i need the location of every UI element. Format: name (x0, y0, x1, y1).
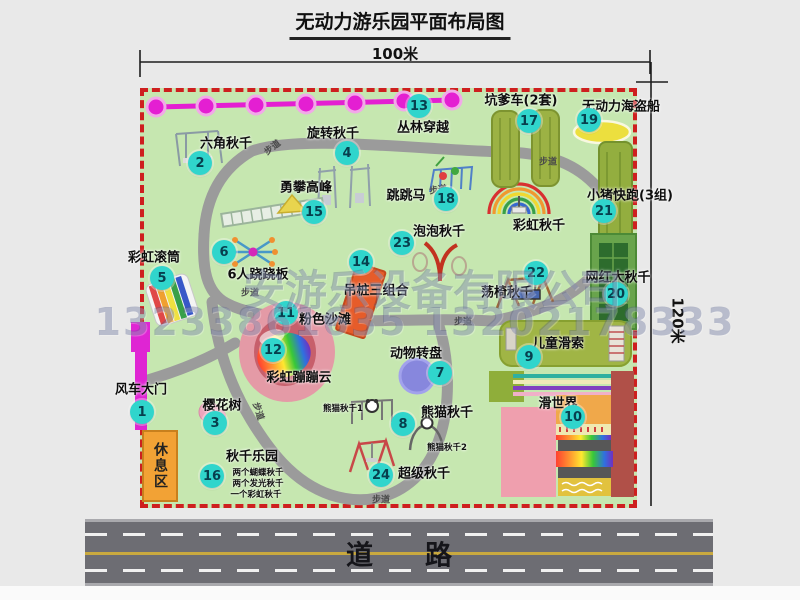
label-pink-beach: 粉色沙滩 (299, 309, 351, 328)
label-pit-cars: 坑爹车(2套) (485, 90, 558, 109)
height-dimension-label: 120米 (668, 297, 689, 343)
label-swing-park-sub3: 一个彩虹秋千 (230, 488, 281, 500)
width-dimension-label: 100米 (372, 43, 418, 64)
badge-14: 14 (349, 250, 373, 274)
label-bubble-swing: 泡泡秋千 (413, 221, 465, 240)
walkway-label: 步道 (241, 286, 259, 299)
badge-13: 13 (407, 94, 431, 118)
badge-10: 10 (561, 405, 585, 429)
label-animal-turntable: 动物转盘 (390, 343, 442, 362)
label-jumping-horse: 跳跳马 (386, 185, 425, 204)
badge-21: 21 (592, 199, 616, 223)
label-windmill-gate: 风车大门 (115, 379, 167, 398)
badge-15: 15 (302, 200, 326, 224)
badge-23: 23 (390, 231, 414, 255)
page-title: 无动力游乐园平面布局图 (289, 7, 510, 40)
label-hanging-piles: 吊桩三组合 (343, 280, 408, 299)
badge-8: 8 (391, 412, 415, 436)
badge-1: 1 (130, 400, 154, 424)
label-panda-swing: 熊猫秋千 (421, 402, 473, 421)
label-rotating-swing: 旋转秋千 (307, 123, 359, 142)
badge-3: 3 (203, 411, 227, 435)
road-label: 道路 (294, 533, 504, 572)
label-swing-park: 秋千乐园 (226, 446, 278, 465)
badge-20: 20 (604, 282, 628, 306)
badge-9: 9 (517, 345, 541, 369)
badge-16: 16 (200, 464, 224, 488)
label-super-swing: 超级秋千 (398, 463, 450, 482)
walkway-label: 步道 (372, 493, 390, 506)
label-six-person-seesaw: 6人跷跷板 (227, 264, 288, 283)
label-rainbow-roller: 彩虹滚筒 (128, 247, 180, 266)
park-layout-diagram: 无动力游乐园平面布局图 100米 120米 (0, 0, 800, 600)
badge-19: 19 (577, 108, 601, 132)
rest-area: 休息区 (142, 430, 178, 502)
label-kids-zipline: 儿童滑索 (532, 333, 584, 352)
label-panda-swing-2: 熊猫秋千2 (427, 441, 467, 453)
badge-7: 7 (428, 361, 452, 385)
badge-12: 12 (261, 338, 285, 362)
label-climbing-peak: 勇攀高峰 (280, 177, 332, 196)
badge-18: 18 (434, 187, 458, 211)
badge-22: 22 (524, 261, 548, 285)
label-rainbow-swing: 彩虹秋千 (513, 215, 565, 234)
label-cherry-tree: 樱花树 (202, 395, 241, 414)
badge-5: 5 (150, 266, 174, 290)
badge-24: 24 (369, 463, 393, 487)
road: 道路 (85, 519, 713, 586)
badge-4: 4 (335, 141, 359, 165)
label-rainbow-cloud: 彩虹蹦蹦云 (266, 367, 331, 386)
label-hexagon-swing: 六角秋千 (200, 133, 252, 152)
rest-area-label: 休息区 (150, 442, 170, 490)
walkway-label: 步道 (454, 315, 472, 328)
walkway-label: 步道 (539, 155, 557, 168)
label-chair-swing: 荡椅秋千 (481, 282, 533, 301)
bottom-margin (0, 586, 800, 600)
badge-6: 6 (212, 240, 236, 264)
label-panda-swing-1: 熊猫秋千1 (323, 402, 363, 414)
badge-17: 17 (517, 109, 541, 133)
badge-11: 11 (274, 301, 298, 325)
badge-2: 2 (188, 151, 212, 175)
label-jungle-crossing: 丛林穿越 (397, 117, 449, 136)
